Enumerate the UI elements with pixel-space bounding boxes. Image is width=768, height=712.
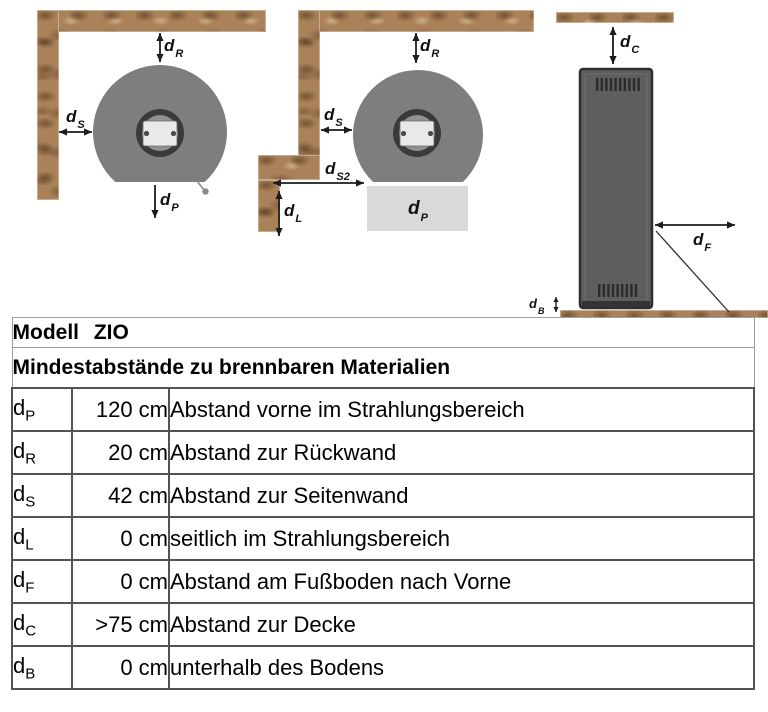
label-dc-3: dC bbox=[620, 33, 638, 54]
description-cell: Abstand zur Decke bbox=[169, 603, 754, 646]
symbol-cell: dP bbox=[12, 388, 72, 431]
door-handle-icon bbox=[197, 181, 204, 190]
value-cell: 0 cm bbox=[72, 646, 169, 689]
description-cell: seitlich im Strahlungsbereich bbox=[169, 517, 754, 560]
table-row: dS 42 cm Abstand zur Seitenwand bbox=[12, 474, 754, 517]
description-cell: Abstand am Fußboden nach Vorne bbox=[169, 560, 754, 603]
symbol-cell: dB bbox=[12, 646, 72, 689]
arrow-icon bbox=[609, 27, 616, 64]
flue-ring-icon bbox=[136, 109, 184, 157]
label-dp-2: dP bbox=[408, 199, 427, 222]
label-dp-1: dP bbox=[160, 191, 178, 212]
table-row: dC >75 cm Abstand zur Decke bbox=[12, 603, 754, 646]
wall-top-2 bbox=[298, 10, 534, 32]
arrow-icon bbox=[151, 185, 158, 218]
value-cell: 0 cm bbox=[72, 560, 169, 603]
wall-step-2 bbox=[258, 155, 320, 180]
value-cell: >75 cm bbox=[72, 603, 169, 646]
arrow-icon bbox=[59, 128, 92, 135]
stove-top-view-1 bbox=[93, 65, 227, 195]
wall-top-1 bbox=[37, 10, 266, 32]
label-ds-1: dS bbox=[66, 108, 84, 129]
wall-step-lower-2 bbox=[258, 180, 280, 232]
arrow-icon bbox=[156, 33, 163, 62]
description-cell: unterhalb des Bodens bbox=[169, 646, 754, 689]
table-row: dP 120 cm Abstand vorne im Strahlungsber… bbox=[12, 388, 754, 431]
clearance-diagrams: dR dS dP dR dS dS2 dL dP dC dF dB bbox=[0, 0, 768, 330]
value-cell: 42 cm bbox=[72, 474, 169, 517]
symbol-cell: dF bbox=[12, 560, 72, 603]
table-subtitle: Mindestabstände zu brennbaren Materialie… bbox=[12, 348, 754, 389]
description-cell: Abstand zur Rückwand bbox=[169, 431, 754, 474]
symbol-cell: dR bbox=[12, 431, 72, 474]
value-cell: 20 cm bbox=[72, 431, 169, 474]
label-dl-2: dL bbox=[284, 202, 301, 223]
stove-side-view bbox=[580, 69, 652, 308]
label-ds2-2: dS2 bbox=[325, 160, 349, 181]
label-dr-1: dR bbox=[164, 37, 182, 58]
flue-ring-icon bbox=[393, 109, 441, 157]
ceiling-3 bbox=[556, 12, 674, 23]
arrow-icon bbox=[273, 179, 364, 186]
vent-grille-bottom-icon bbox=[598, 284, 637, 297]
description-cell: Abstand zur Seitenwand bbox=[169, 474, 754, 517]
label-db-3: dB bbox=[529, 297, 543, 314]
arrow-icon bbox=[655, 221, 735, 228]
value-cell: 0 cm bbox=[72, 517, 169, 560]
table-title: Modell ZIO bbox=[12, 318, 754, 348]
wall-side-1 bbox=[37, 10, 59, 200]
table-row: dL 0 cm seitlich im Strahlungsbereich bbox=[12, 517, 754, 560]
symbol-cell: dL bbox=[12, 517, 72, 560]
arrow-icon bbox=[412, 33, 419, 63]
table-row: dB 0 cm unterhalb des Bodens bbox=[12, 646, 754, 689]
table-row: dR 20 cm Abstand zur Rückwand bbox=[12, 431, 754, 474]
diagram-shapes bbox=[0, 0, 768, 330]
arrow-icon bbox=[553, 297, 558, 312]
vent-grille-top-icon bbox=[596, 78, 640, 91]
value-cell: 120 cm bbox=[72, 388, 169, 431]
symbol-cell: dS bbox=[12, 474, 72, 517]
label-ds-2: dS bbox=[324, 106, 342, 127]
measurement-arrows bbox=[59, 27, 735, 312]
description-cell: Abstand vorne im Strahlungsbereich bbox=[169, 388, 754, 431]
clearance-table: Modell ZIO Mindestabstände zu brennbaren… bbox=[11, 317, 753, 690]
label-df-3: dF bbox=[693, 231, 710, 252]
label-dr-2: dR bbox=[420, 37, 438, 58]
symbol-cell: dC bbox=[12, 603, 72, 646]
table-row: dF 0 cm Abstand am Fußboden nach Vorne bbox=[12, 560, 754, 603]
